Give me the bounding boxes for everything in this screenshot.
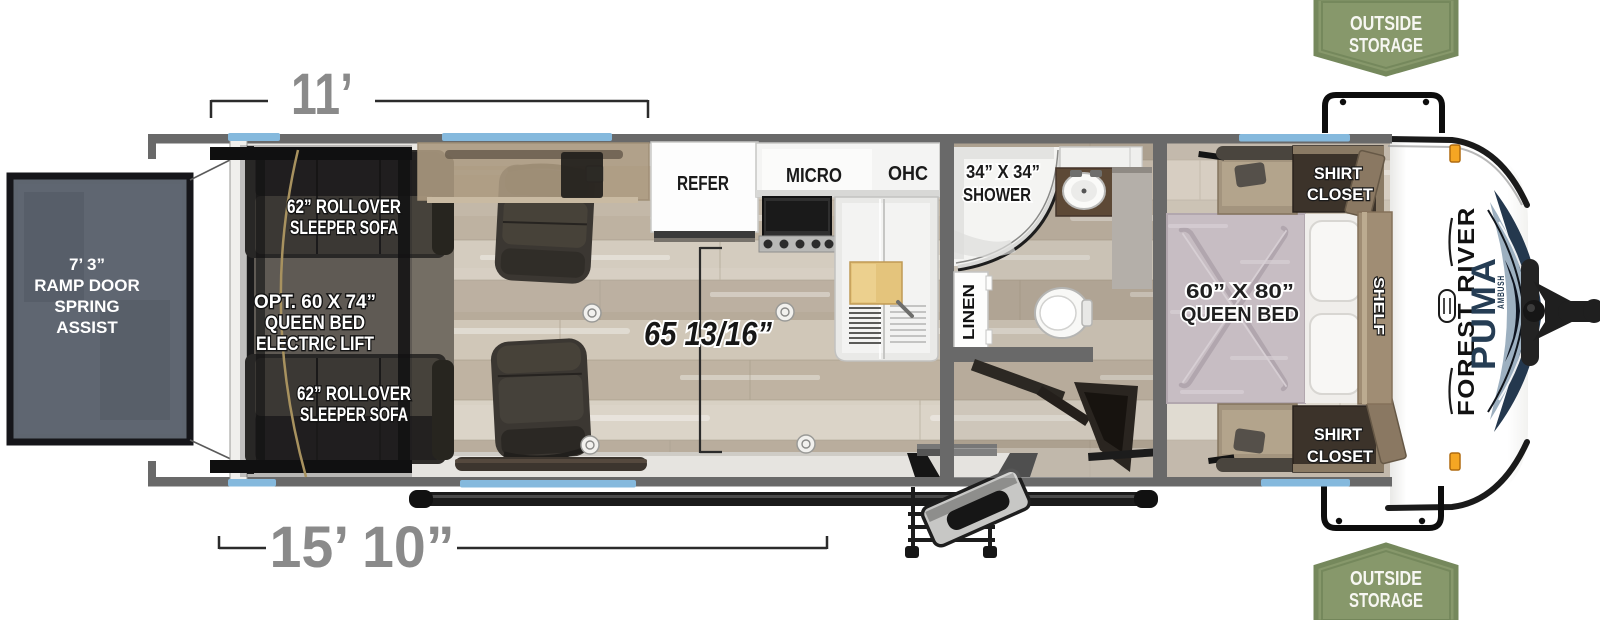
svg-text:60” X 80”: 60” X 80” xyxy=(1186,281,1294,303)
svg-text:STORAGE: STORAGE xyxy=(1349,35,1423,57)
svg-text:SHIRT: SHIRT xyxy=(1314,164,1363,183)
svg-text:AMBUSH: AMBUSH xyxy=(1496,275,1506,309)
svg-text:OUTSIDE: OUTSIDE xyxy=(1350,13,1422,35)
svg-text:ASSIST: ASSIST xyxy=(56,318,118,337)
svg-text:RAMP DOOR: RAMP DOOR xyxy=(34,276,139,295)
svg-text:CLOSET: CLOSET xyxy=(1307,447,1374,466)
svg-text:SHIRT: SHIRT xyxy=(1314,425,1363,444)
svg-text:SPRING: SPRING xyxy=(54,297,119,316)
svg-text:15’ 10”: 15’ 10” xyxy=(270,515,455,580)
svg-text:SLEEPER SOFA: SLEEPER SOFA xyxy=(300,405,408,426)
svg-text:ELECTRIC LIFT: ELECTRIC LIFT xyxy=(256,334,374,355)
svg-text:REFER: REFER xyxy=(677,173,729,195)
svg-text:OUTSIDE: OUTSIDE xyxy=(1350,568,1422,590)
svg-text:65 13/16”: 65 13/16” xyxy=(644,315,772,352)
svg-text:62” ROLLOVER: 62” ROLLOVER xyxy=(297,384,411,405)
svg-text:11’: 11’ xyxy=(291,62,353,127)
svg-text:OHC: OHC xyxy=(888,163,928,185)
svg-text:MICRO: MICRO xyxy=(786,165,842,187)
svg-text:PUMA: PUMA xyxy=(1465,256,1503,370)
svg-text:STORAGE: STORAGE xyxy=(1349,590,1423,612)
svg-text:7’ 3”: 7’ 3” xyxy=(69,255,105,274)
svg-text:OPT. 60 X 74”: OPT. 60 X 74” xyxy=(254,292,376,313)
svg-text:SLEEPER SOFA: SLEEPER SOFA xyxy=(290,218,398,239)
svg-text:62” ROLLOVER: 62” ROLLOVER xyxy=(287,197,401,218)
svg-text:QUEEN BED: QUEEN BED xyxy=(265,313,365,334)
svg-text:SHOWER: SHOWER xyxy=(963,185,1031,205)
svg-text:LINEN: LINEN xyxy=(961,284,978,340)
svg-text:QUEEN BED: QUEEN BED xyxy=(1181,304,1299,326)
svg-text:34” X 34”: 34” X 34” xyxy=(966,162,1040,182)
svg-text:SHELF: SHELF xyxy=(1370,277,1386,335)
svg-text:CLOSET: CLOSET xyxy=(1307,185,1374,204)
